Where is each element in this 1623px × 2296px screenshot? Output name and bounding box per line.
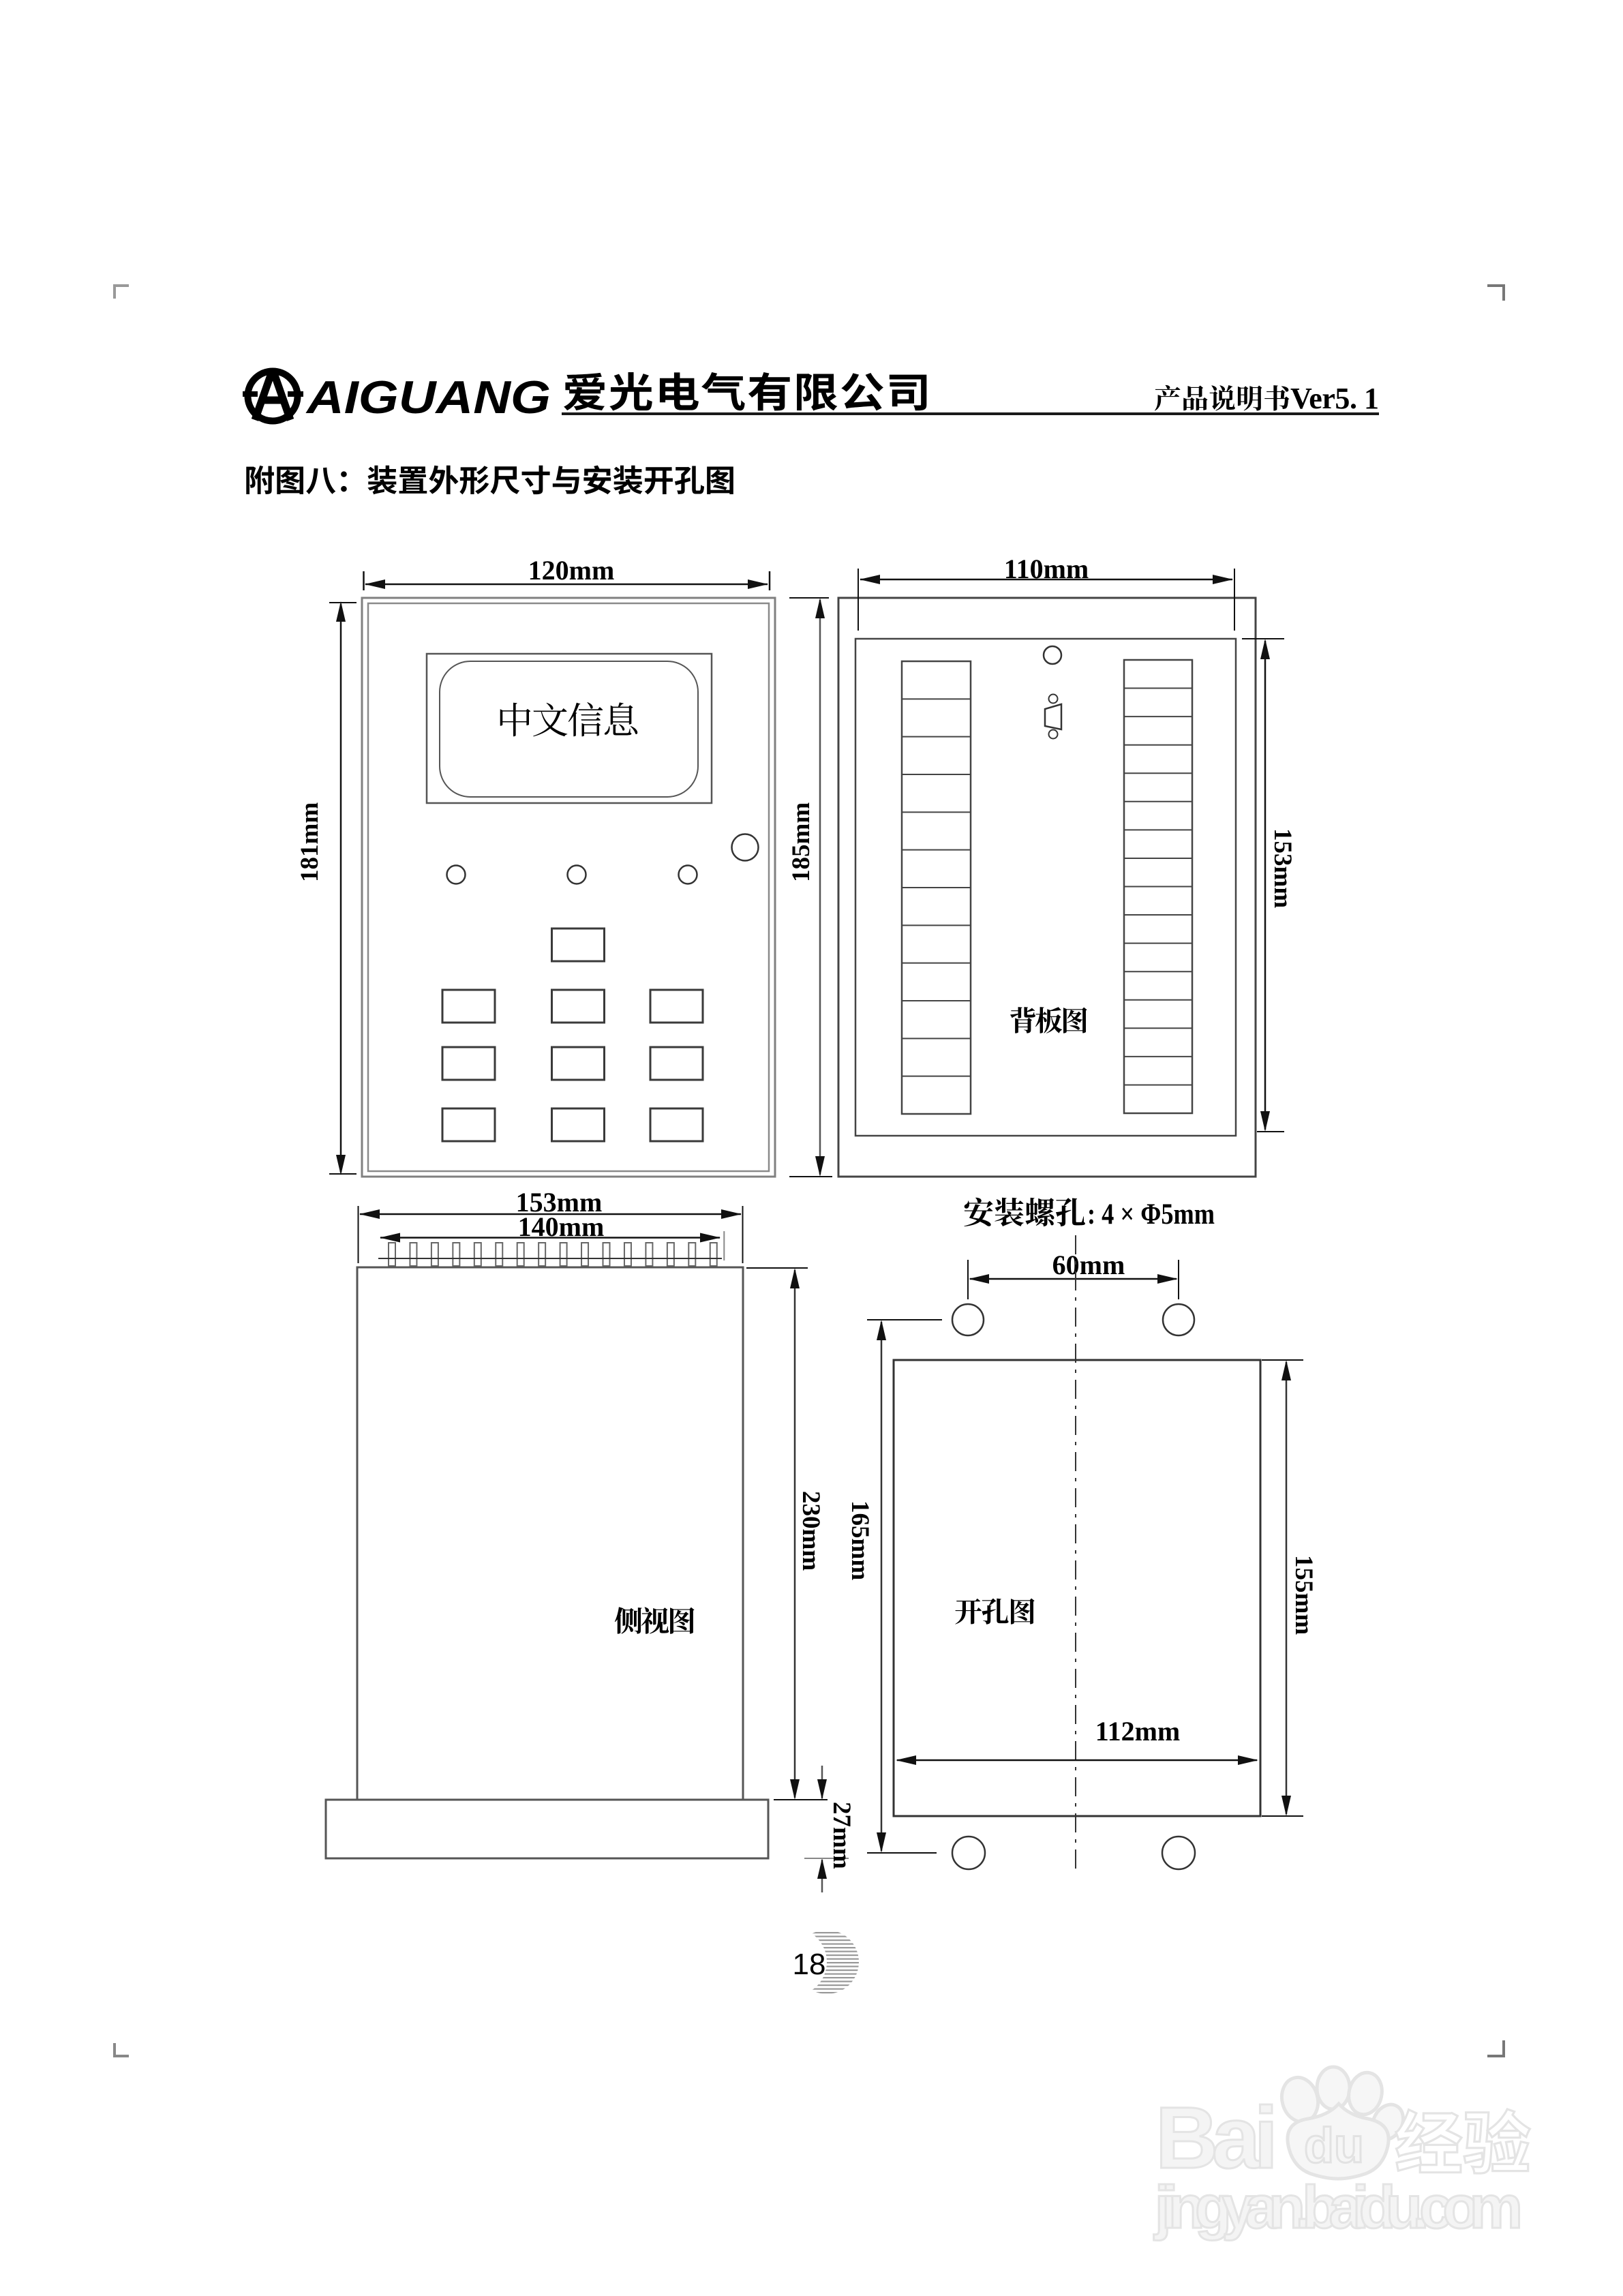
svg-text:165mm: 165mm	[846, 1500, 874, 1580]
svg-text:185mm: 185mm	[787, 802, 815, 882]
svg-text:181mm: 181mm	[296, 802, 324, 882]
svg-text:du: du	[1304, 2119, 1364, 2173]
svg-text:110mm: 110mm	[1004, 554, 1089, 584]
svg-text:60mm: 60mm	[1052, 1250, 1125, 1280]
svg-text:112mm: 112mm	[1095, 1716, 1180, 1747]
svg-text:120mm: 120mm	[528, 555, 615, 586]
svg-text:jingyan.baidu.com: jingyan.baidu.com	[1153, 2173, 1523, 2241]
svg-text:AIGUANG: AIGUANG	[305, 372, 551, 423]
svg-text:155mm: 155mm	[1290, 1555, 1318, 1635]
svg-text:Ver5. 1: Ver5. 1	[1290, 382, 1379, 415]
svg-text:230mm: 230mm	[797, 1491, 825, 1571]
svg-text:27mm: 27mm	[828, 1802, 855, 1869]
svg-text:153mm: 153mm	[1269, 828, 1296, 908]
svg-text:140mm: 140mm	[518, 1211, 605, 1242]
svg-text:Bai: Bai	[1155, 2089, 1278, 2187]
svg-text:: 4 × Φ5mm: : 4 × Φ5mm	[1087, 1198, 1215, 1230]
